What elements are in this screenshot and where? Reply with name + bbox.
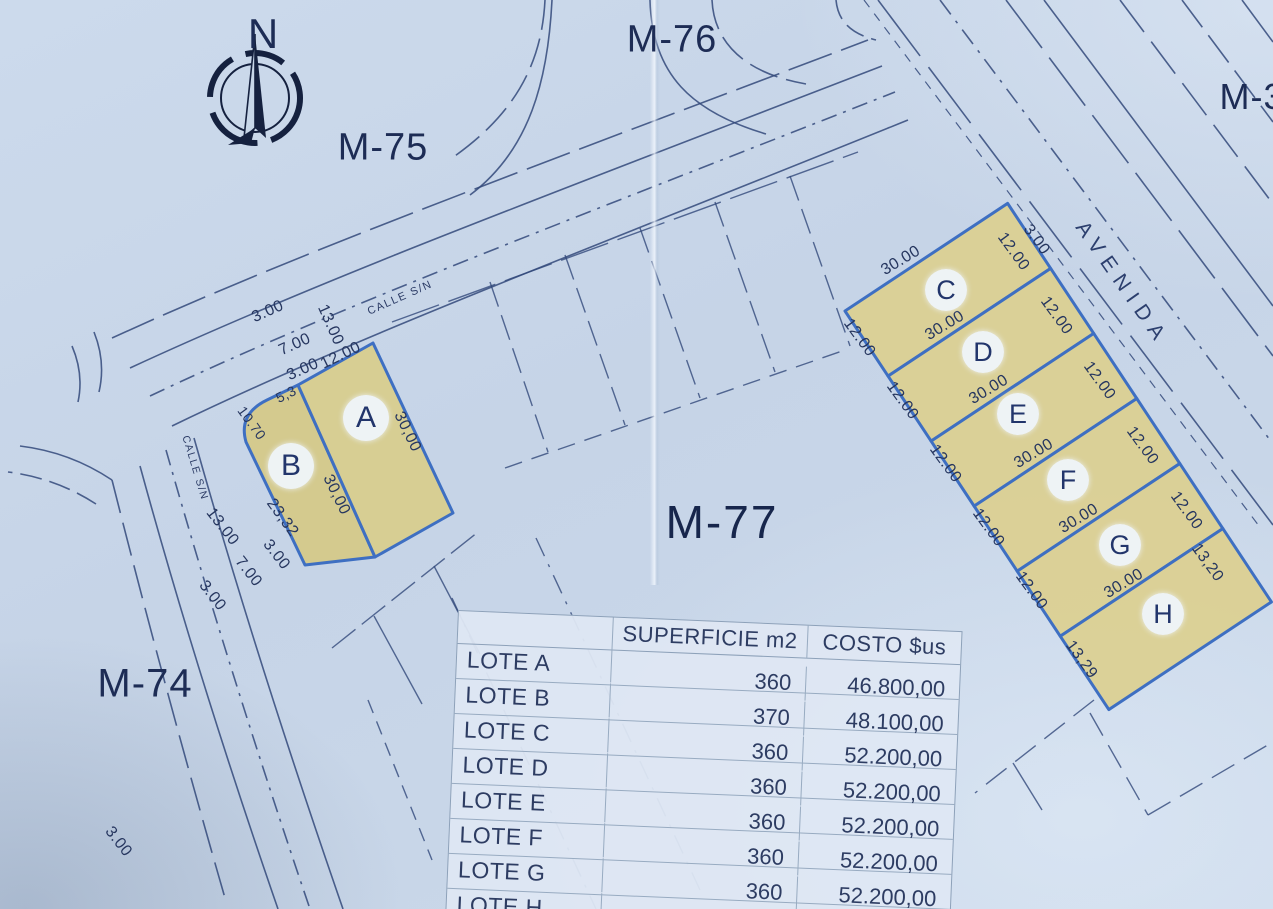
row-costo: 52.200,00 <box>801 772 955 812</box>
block-label-m76: M-76 <box>627 19 718 62</box>
row-label: LOTE E <box>450 782 606 822</box>
row-label: LOTE C <box>453 712 609 752</box>
lot-marker-d: D <box>962 331 1004 373</box>
m77-upper-lot-lines <box>392 152 858 468</box>
row-costo: 48.100,00 <box>804 702 958 742</box>
lot-marker-g: G <box>1099 524 1141 566</box>
block-label-m74: M-74 <box>97 662 192 707</box>
lot-marker-b: B <box>268 443 314 489</box>
row-costo: 52.200,00 <box>798 842 952 882</box>
lot-marker-f: F <box>1047 459 1089 501</box>
lot-marker-e: E <box>997 393 1039 435</box>
row-label: LOTE G <box>447 852 603 892</box>
row-costo: 52.200,00 <box>803 737 957 777</box>
plat-map-scan: N M-75 M-76 M-3 M-77 M-74 AVENIDA CALLE … <box>0 0 1273 909</box>
block-label-m3: M-3 <box>1220 76 1273 118</box>
block-label-m77: M-77 <box>666 495 779 549</box>
row-label: LOTE F <box>449 817 605 857</box>
lot-marker-a: A <box>343 395 389 441</box>
north-label: N <box>248 10 278 58</box>
row-costo: 52.200,00 <box>797 876 951 909</box>
row-label: LOTE A <box>456 642 612 682</box>
row-costo: 52.200,00 <box>800 807 954 847</box>
table-header-costo: COSTO $us <box>807 626 961 664</box>
lot-marker-c: C <box>925 269 967 311</box>
row-label: LOTE B <box>455 677 611 717</box>
row-label: LOTE D <box>452 747 608 787</box>
lot-marker-h: H <box>1142 593 1184 635</box>
row-superficie: 360 <box>602 868 798 909</box>
upper-street-lines <box>112 40 908 426</box>
row-costo: 46.800,00 <box>806 667 960 707</box>
price-table: SUPERFICIE m2 COSTO $us LOTE A 360 46.80… <box>445 610 963 909</box>
block-label-m75: M-75 <box>338 127 429 170</box>
